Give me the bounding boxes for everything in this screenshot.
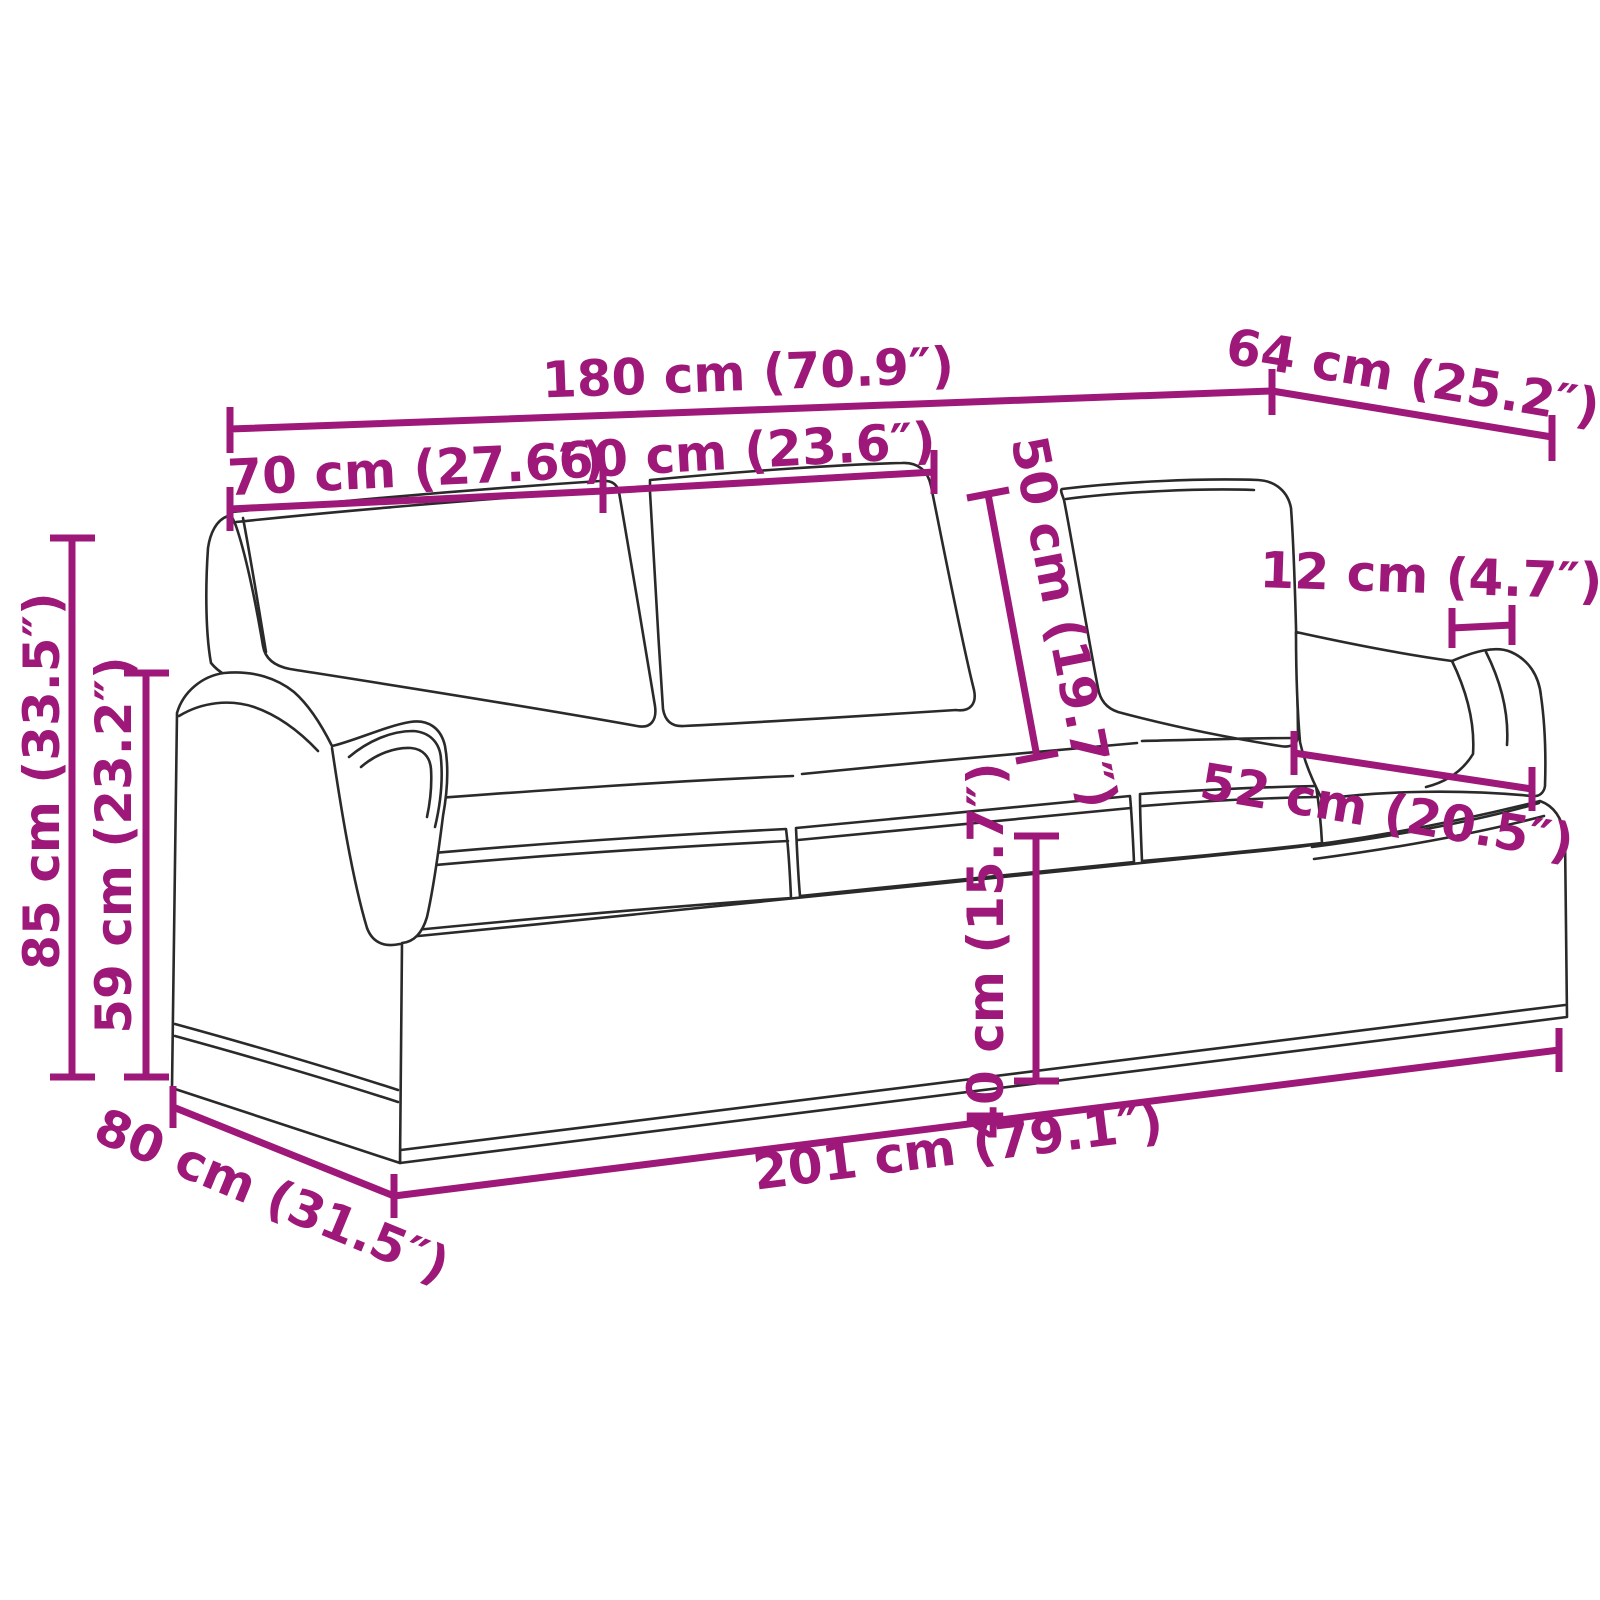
dim-label-armrest-12: 12 cm (4.7″) (1259, 545, 1600, 607)
dim-label-seat-height-40: 40 cm (15.7″) (961, 762, 1011, 1140)
dim-label-overall-width-180: 180 cm (70.9″) (541, 340, 955, 405)
dimension-line-12cm (1452, 605, 1512, 648)
dimension-diagram: 180 cm (70.9″) 64 cm (25.2″) 70 cm (27.6… (0, 0, 1600, 1600)
sofa-back-frame-left-edge (206, 516, 244, 681)
sofa-back-cushion-middle (650, 463, 975, 726)
sofa-back-cushion-left (231, 481, 655, 727)
dim-label-arm-height-59: 59 cm (23.2″) (89, 656, 139, 1034)
dim-label-total-height-85: 85 cm (33.5″) (17, 592, 67, 970)
